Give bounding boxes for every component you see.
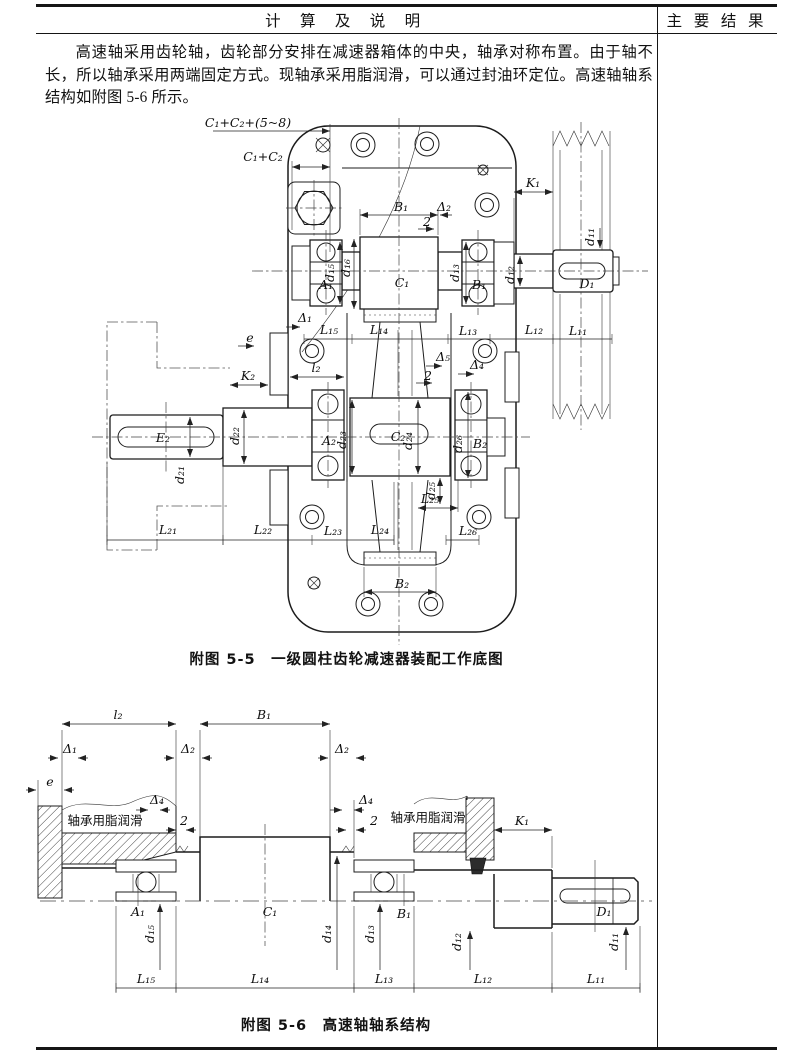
fig56-label-two-right: 2 xyxy=(369,813,378,828)
dimension-lines xyxy=(107,124,612,597)
fig55-label-delta2: Δ₂ xyxy=(436,199,451,214)
fig56-label-delta2-right: Δ₂ xyxy=(334,741,349,756)
fig55-label-b1: B₁ xyxy=(471,277,486,292)
fig55-label-delta5: Δ₅ xyxy=(435,349,450,364)
fig56-label-delta2-left: Δ₂ xyxy=(180,741,195,756)
fig56-label-d14: d₁₄ xyxy=(319,925,334,943)
fig56-label-delta4-left: Δ₄ xyxy=(149,792,164,807)
fig56-label-l15: L₁₅ xyxy=(136,971,155,986)
fig55-label-d26: d₂₆ xyxy=(450,435,465,453)
fig55-label-c1c2-58: C₁+C₂+(5~8) xyxy=(205,115,291,130)
fig55-label-l2: l₂ xyxy=(311,360,320,375)
fig56-label-l2: l₂ xyxy=(113,707,122,722)
fig55-label-b1-top: B₁ xyxy=(393,199,408,214)
fig55-label-e2: E₂ xyxy=(155,430,170,445)
fig56-label-d12: d₁₂ xyxy=(449,933,464,951)
fig55-label-l14: L₁₄ xyxy=(369,322,388,337)
fig55-label-e: e xyxy=(246,330,253,345)
fig55-label-l13: L₁₃ xyxy=(458,323,477,338)
fig55-label-l24: L₂₄ xyxy=(370,522,389,537)
fig56-label-c1: C₁ xyxy=(263,904,278,919)
figure-5-6-drawing: l₂ B₁ Δ₁ Δ₂ Δ₂ e Δ₄ 2 轴承用脂润滑 Δ₄ 2 轴承用脂润滑… xyxy=(25,688,660,1006)
figure-5-6-caption: 附图 5-6 高速轴轴系结构 xyxy=(36,1014,636,1035)
fig56-label-grease-right: 轴承用脂润滑 xyxy=(390,810,465,825)
fig56-label-b1-hub: B₁ xyxy=(396,906,411,921)
fig56-label-l11: L₁₁ xyxy=(586,971,605,986)
felt-seal xyxy=(470,858,486,874)
fig56-label-d15: d₁₅ xyxy=(142,925,157,943)
fig55-label-l15: L₁₅ xyxy=(319,322,338,337)
ball-bearing-right xyxy=(342,846,414,901)
fig55-label-d21: d₂₁ xyxy=(172,466,187,484)
fig55-label-l22: L₂₂ xyxy=(253,522,272,537)
column-title-right: 主 要 结 果 xyxy=(657,9,777,31)
document-page: 计 算 及 说 明 主 要 结 果 高速轴采用齿轮轴，齿轮部分安排在减速器箱体的… xyxy=(0,0,806,1062)
fig56-label-d13: d₁₃ xyxy=(362,925,377,943)
fig55-label-d13: d₁₃ xyxy=(447,264,462,282)
header-bottom-rule xyxy=(36,33,777,34)
fig55-label-d11: d₁₁ xyxy=(582,228,597,246)
fig56-label-delta1: Δ₁ xyxy=(62,741,77,756)
fig55-label-two-top: 2 xyxy=(422,214,431,229)
fig55-label-delta4: Δ₄ xyxy=(469,357,484,372)
fig56-label-a1: A₁ xyxy=(130,904,145,919)
fig56-label-delta4-right: Δ₄ xyxy=(358,792,373,807)
fig56-label-grease-left: 轴承用脂润滑 xyxy=(67,813,142,828)
fig55-label-d22: d₂₂ xyxy=(227,427,242,445)
hex-plug xyxy=(286,180,342,236)
fig56-label-two-left: 2 xyxy=(179,813,188,828)
fig55-label-k1: K₁ xyxy=(525,175,540,190)
fig55-label-d24: d₂₄ xyxy=(400,432,415,450)
column-title-left: 计 算 及 说 明 xyxy=(36,9,657,31)
fig55-label-c1c2: C₁+C₂ xyxy=(243,149,283,164)
fig55-label-d12: d₁₂ xyxy=(502,266,517,284)
top-rule xyxy=(36,4,777,7)
fig55-label-k2: K₂ xyxy=(240,368,255,383)
figure-5-5-caption: 附图 5-5 一级圆柱齿轮减速器装配工作底图 xyxy=(36,648,657,669)
fig55-label-c1: C₁ xyxy=(395,275,410,290)
fig55-label-l26: L₂₆ xyxy=(458,523,477,538)
fig55-label-b2-bottom: B₂ xyxy=(394,576,409,591)
fig55-label-b2: B₂ xyxy=(472,436,487,451)
fig55-label-l12: L₁₂ xyxy=(524,322,543,337)
fig56-label-k1: K₁ xyxy=(514,813,529,828)
fig55-label-l25: L₂₅ xyxy=(420,491,439,506)
fig55-label-dd1: D₁ xyxy=(578,276,594,291)
fig56-label-l14: L₁₄ xyxy=(250,971,269,986)
fig55-label-delta1: Δ₁ xyxy=(297,310,312,325)
fig55-label-d16: d₁₆ xyxy=(338,259,353,277)
bottom-rule xyxy=(36,1047,777,1050)
centerlines xyxy=(92,118,648,645)
fig55-label-two-mid: 2 xyxy=(423,368,432,383)
fig56-label-b1: B₁ xyxy=(256,707,271,722)
fig56-label-dd1: D₁ xyxy=(595,904,611,919)
fig55-label-l21: L₂₁ xyxy=(158,522,177,537)
fig56-label-e: e xyxy=(46,774,53,789)
fig55-label-l11: L₁₁ xyxy=(568,323,587,338)
fig55-label-l23: L₂₃ xyxy=(323,523,342,538)
figure-5-5-drawing: C₁+C₂+(5~8) C₁+C₂ K₁ B₁ Δ₂ 2 A₁ d₁₅ d₁₆ … xyxy=(85,112,660,648)
fig56-label-l13: L₁₃ xyxy=(374,971,393,986)
fig55-label-d23: d₂₃ xyxy=(334,431,349,449)
body-paragraph: 高速轴采用齿轮轴，齿轮部分安排在减速器箱体的中央，轴承对称布置。由于轴不长，所以… xyxy=(45,42,653,110)
fig56-label-l12: L₁₂ xyxy=(473,971,492,986)
fig55-label-d15: d₁₅ xyxy=(322,264,337,282)
fig56-label-d11: d₁₁ xyxy=(606,933,621,951)
